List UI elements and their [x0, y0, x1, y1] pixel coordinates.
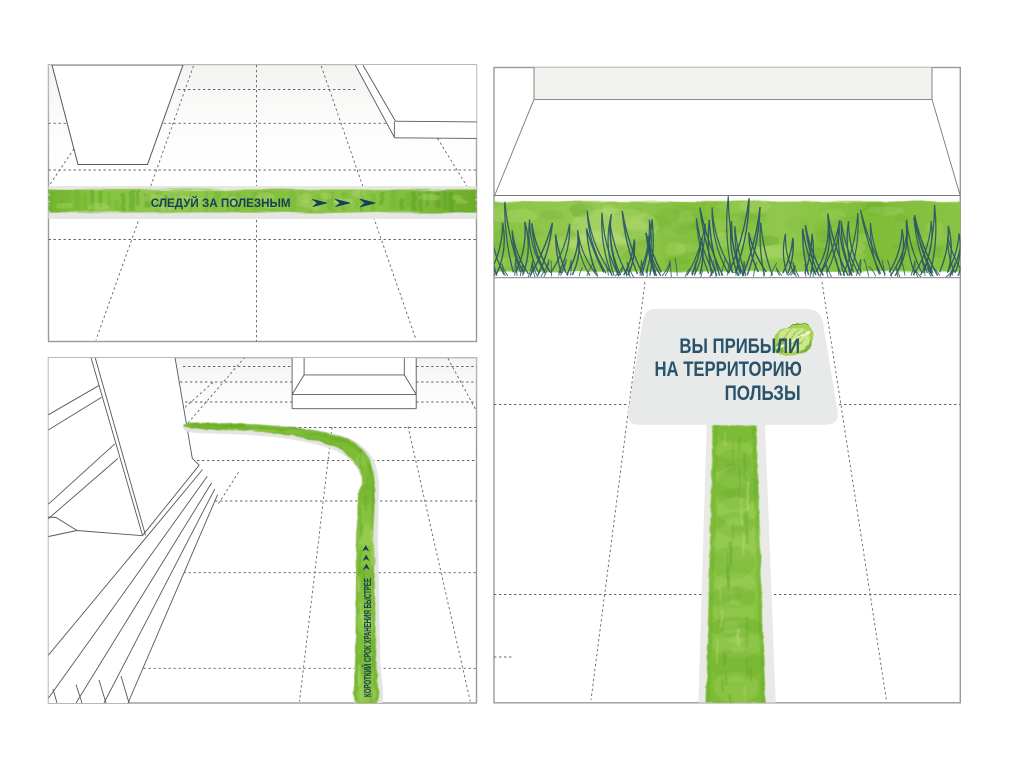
svg-text:ПОЛЬЗЫ: ПОЛЬЗЫ [725, 380, 801, 405]
svg-text:КОРОТКИЙ СРОК ХРАНЕНИЯ БЫСТРЕЕ: КОРОТКИЙ СРОК ХРАНЕНИЯ БЫСТРЕЕ [361, 578, 374, 697]
svg-text:СЛЕДУЙ ЗА ПОЛЕЗНЫМ: СЛЕДУЙ ЗА ПОЛЕЗНЫМ [151, 195, 291, 210]
svg-text:ВЫ ПРИБЫЛИ: ВЫ ПРИБЫЛИ [679, 333, 800, 358]
svg-text:НА ТЕРРИТОРИЮ: НА ТЕРРИТОРИЮ [655, 356, 802, 381]
